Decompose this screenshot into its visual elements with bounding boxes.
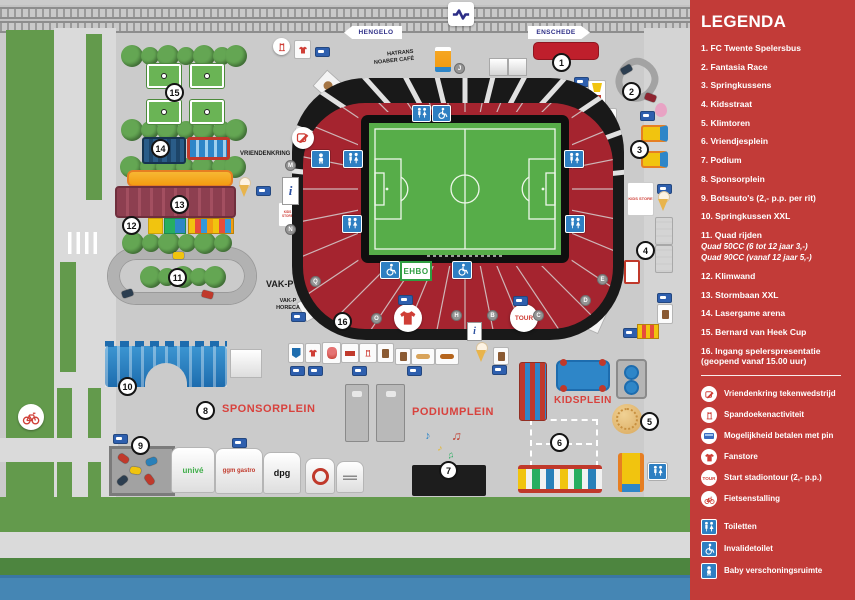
mascot-stall: [322, 342, 341, 364]
disabled-toilet-icon: [701, 541, 717, 557]
marker-6: 6: [550, 433, 569, 452]
coffee-stall: [395, 348, 411, 365]
legend-icon-label: Baby verschoningsruimte: [724, 567, 822, 576]
stadium-event-map: HENGELO ENSCHEDE KIDS STORE: [0, 0, 855, 600]
label-hatrans: HATRANSNOABER CAFÉ: [351, 49, 414, 69]
fanstore-icon: [394, 304, 422, 332]
grass-median: [86, 34, 102, 200]
toilets-icon: [701, 519, 717, 535]
legend-item: 9. Botsauto's (2,- p.p. per rit): [701, 193, 843, 203]
label-vak-p: VAK-P: [266, 279, 293, 289]
legend-item: 11. Quad rijden: [701, 230, 843, 240]
pin-payment-icon: [513, 296, 528, 306]
schalke-badge-stall: [288, 343, 304, 363]
pin-payment-icon: [623, 328, 638, 338]
label-vak-p-horeca: VAK-P HORECA: [268, 298, 308, 311]
storage-container: [376, 384, 405, 442]
legend-facility-row: Baby verschoningsruimte: [701, 563, 843, 579]
tree: [204, 266, 226, 288]
marker-10: 10: [118, 377, 137, 396]
storage-container: [345, 384, 369, 442]
tree: [214, 234, 232, 252]
inflatable-attraction: [187, 137, 230, 160]
legend-icon-row: TOUR Start stadiontour (2,- p.p.): [701, 470, 843, 486]
disabled-toilet-icon: [432, 105, 451, 122]
map-area: HENGELO ENSCHEDE KIDS STORE: [0, 0, 690, 600]
pin-payment-icon: [232, 438, 247, 448]
legend-item: 16. Ingang spelerspresentatie (geopend v…: [701, 346, 843, 366]
info-stand: i: [282, 177, 299, 205]
pin-payment-icon: [308, 366, 323, 376]
legend-item: 1. FC Twente Spelersbus: [701, 43, 843, 53]
quad-kart: [173, 252, 184, 259]
crosswalk: [68, 232, 98, 254]
fanstore-icon: [701, 449, 717, 465]
legend-icon-label: Spandoekenactiviteit: [724, 411, 804, 420]
legend-icon-row: Fietsenstalling: [701, 491, 843, 507]
marker-5: 5: [640, 412, 659, 431]
section-letter: D: [580, 295, 591, 306]
road-horizontal: [0, 438, 118, 462]
sponsor-tent-dpg: dpg: [263, 452, 301, 494]
kids-slide: [519, 362, 547, 421]
railway: [0, 5, 690, 29]
legend-facility-row: Invalidetoilet: [701, 541, 843, 557]
inflatable-yellow: [618, 453, 644, 492]
toilets-icon: [564, 150, 584, 168]
sponsor-tent-unive: univé: [171, 447, 215, 493]
bumper-car: [116, 474, 129, 486]
marker-3: 3: [630, 140, 649, 159]
legend-icon-row: Spandoekenactiviteit: [701, 407, 843, 423]
baby-room-icon: [311, 150, 330, 168]
marker-4: 4: [636, 241, 655, 260]
music-note-icon: ♫: [446, 449, 455, 460]
section-letter: E: [597, 274, 608, 285]
legend-item: 6. Vriendjesplein: [701, 136, 843, 146]
springkussen: [641, 125, 668, 142]
ns-railway-logo-icon: [448, 2, 474, 26]
balloon-icon: [655, 103, 667, 117]
river-bank: [0, 558, 690, 575]
legend-item: 14. Lasergame arena: [701, 308, 843, 318]
marker-1: 1: [552, 53, 571, 72]
banner-activity-icon: [701, 407, 717, 423]
bumper-car: [130, 466, 142, 474]
pin-payment-icon: [640, 111, 655, 121]
pin-payment-icon: [657, 293, 672, 303]
icecream-stand-icon: [474, 342, 487, 363]
pin-payment-icon: [290, 366, 305, 376]
ball-logo-icon: [312, 468, 329, 485]
section-letter: B: [487, 310, 498, 321]
grass-median: [60, 262, 76, 372]
legend-icon-row: Mogelijkheid betalen met pin: [701, 428, 843, 444]
pin-payment-icon: [315, 47, 330, 57]
section-letter: Q: [310, 276, 321, 287]
tree: [121, 119, 143, 141]
pin-payment-icon: [398, 295, 413, 305]
toilets-icon: [343, 150, 363, 168]
music-note-icon: ♪: [424, 430, 432, 443]
legend-icon-label: Toiletten: [724, 523, 757, 532]
marker-9: 9: [131, 436, 150, 455]
candy-stall: [637, 324, 659, 339]
sandwich-stall: [411, 348, 435, 365]
section-letter: O: [371, 313, 382, 324]
merch-stall: [359, 343, 377, 363]
legend-item: 15. Bernard van Heek Cup: [701, 327, 843, 337]
pin-payment-icon: [291, 312, 306, 322]
legend-item: 3. Springkussens: [701, 80, 843, 90]
marker-16: 16: [333, 312, 352, 331]
icecream-stand-icon: [656, 191, 669, 212]
pin-payment-icon: [492, 365, 507, 375]
climbing-tower-top: [612, 404, 642, 434]
label-vriendenkring: VRIENDENKRING: [240, 151, 290, 157]
coffee-stall: [493, 347, 509, 365]
sponsor-tent: [336, 461, 364, 493]
legend-icon-row: Fanstore: [701, 449, 843, 465]
music-note-icon: ♫: [451, 427, 463, 443]
legend-item: 12. Klimwand: [701, 271, 843, 281]
coffee-stall: [657, 304, 673, 324]
ehbo-first-aid-sign: EHBO: [400, 261, 432, 281]
drawing-contest-icon: [701, 386, 717, 402]
mini-pitch: [147, 100, 181, 124]
stadium-tour-icon: TOUR: [701, 470, 717, 486]
inflatable-orange: [127, 170, 233, 187]
section-letter: J: [454, 63, 465, 74]
bicycle-parking-icon: [701, 491, 717, 507]
marker-2: 2: [622, 82, 641, 101]
legend-item: 4. Kidsstraat: [701, 99, 843, 109]
legend-item-sub: Quad 90CC (vanaf 12 jaar 5,-): [701, 253, 843, 263]
legend-item-sub: Quad 50CC (6 tot 12 jaar 3,-): [701, 242, 843, 252]
legend-item: 7. Podium: [701, 155, 843, 165]
riverside-path: [0, 532, 690, 558]
tree: [121, 45, 143, 67]
toilets-icon: [648, 463, 667, 480]
klimwand-item: [148, 218, 163, 234]
container-pair: [508, 58, 527, 76]
toilets-icon: [412, 105, 431, 122]
marker-13: 13: [170, 195, 189, 214]
food-cart: [624, 260, 640, 284]
bumper-car: [117, 452, 130, 464]
marker-15: 15: [165, 83, 184, 102]
direction-sign-enschede: ENSCHEDE: [528, 26, 590, 39]
kids-store-sign: KIDS STORE: [627, 182, 654, 216]
legend-icon-label: Fanstore: [724, 453, 758, 462]
legend-icon-label: Invalidetoilet: [724, 545, 773, 554]
bumper-car: [143, 473, 155, 486]
sponsor-tent-ggm-gastro: ggm gastro: [215, 448, 263, 494]
container-pair: [489, 58, 508, 76]
marker-14: 14: [151, 139, 170, 158]
legend-icon-label: Vriendenkring tekenwedstrijd: [724, 390, 836, 399]
legend-item: 13. Stormbaan XXL: [701, 290, 843, 300]
legend-title: LEGENDA: [701, 12, 843, 32]
mini-pitch: [190, 64, 224, 88]
icecream-stand-icon: [237, 177, 250, 198]
section-letter: H: [451, 310, 462, 321]
drink-stall: [377, 343, 394, 363]
klimwand-item: [164, 218, 186, 234]
marker-12: 12: [122, 216, 141, 235]
pin-payment-icon: [352, 366, 367, 376]
fanstore-stall: [294, 40, 311, 59]
grass-band: [0, 497, 690, 532]
food-container: [655, 245, 673, 273]
merch-stall: [341, 343, 359, 363]
toilets-icon: [565, 215, 585, 233]
marker-8: 8: [196, 401, 215, 420]
legend-item: 10. Springkussen XXL: [701, 211, 843, 221]
disabled-toilet-icon: [380, 261, 400, 279]
hotdog-stall: [435, 348, 459, 365]
legend-item: 8. Sponsorplein: [701, 174, 843, 184]
legend-facility-row: Toiletten: [701, 519, 843, 535]
pin-payment-icon: [407, 366, 422, 376]
tree: [225, 45, 247, 67]
kids-ladder-course: [518, 465, 602, 493]
sponsor-tent: [305, 458, 335, 494]
legend-item: 2. Fantasia Race: [701, 62, 843, 72]
bumper-car: [145, 456, 158, 466]
klimwand-item: [188, 218, 234, 234]
play-mat: [616, 359, 647, 399]
kids-train: [556, 360, 610, 391]
marker-11: 11: [168, 268, 187, 287]
drink-stand: [435, 47, 451, 72]
baby-room-icon: [701, 563, 717, 579]
info-stand: i: [467, 322, 482, 341]
label-kidsplein: KIDSPLEIN: [554, 395, 612, 406]
section-letter: N: [285, 224, 296, 235]
pin-payment-icon: [701, 428, 717, 444]
tree: [194, 232, 216, 254]
marker-7: 7: [439, 461, 458, 480]
legend-divider: [701, 375, 841, 377]
drawing-contest-icon: [292, 127, 314, 149]
section-letter: M: [285, 160, 296, 171]
label-podiumplein: PODIUMPLEIN: [412, 406, 494, 418]
pin-payment-icon: [113, 434, 128, 444]
fanshirt-stall: [305, 343, 321, 363]
legend-icon-row: Vriendenkring tekenwedstrijd: [701, 386, 843, 402]
legend-icon-label: Mogelijkheid betalen met pin: [724, 432, 833, 441]
bicycle-parking-icon: [18, 404, 44, 430]
sponsor-logo: [343, 474, 357, 480]
disabled-toilet-icon: [452, 261, 472, 279]
legend-icon-label: Fietsenstalling: [724, 495, 780, 504]
rail-track: [0, 7, 690, 19]
food-container: [655, 217, 673, 245]
sponsor-logo: dpg: [274, 468, 291, 478]
stadium: [292, 78, 624, 340]
section-letter: C: [533, 310, 544, 321]
banner-activity-icon: [273, 38, 290, 55]
sponsor-logo: univé: [183, 466, 204, 475]
canal-water: [0, 575, 690, 600]
sponsor-logo: ggm gastro: [223, 468, 256, 474]
music-note-icon: ♪: [437, 443, 444, 454]
legend-item: 5. Klimtoren: [701, 118, 843, 128]
toilets-icon: [342, 215, 362, 233]
legend-panel: LEGENDA 1. FC Twente Spelersbus 2. Fanta…: [690, 0, 855, 600]
label-sponsorplein: SPONSORPLEIN: [222, 403, 315, 415]
tree: [122, 232, 144, 254]
white-booth: [230, 349, 262, 378]
pin-payment-icon: [256, 186, 271, 196]
legend-icon-label: Start stadiontour (2,- p.p.): [724, 474, 822, 483]
mini-pitch: [190, 100, 224, 124]
direction-sign-hengelo: HENGELO: [344, 26, 402, 39]
tree: [158, 232, 180, 254]
